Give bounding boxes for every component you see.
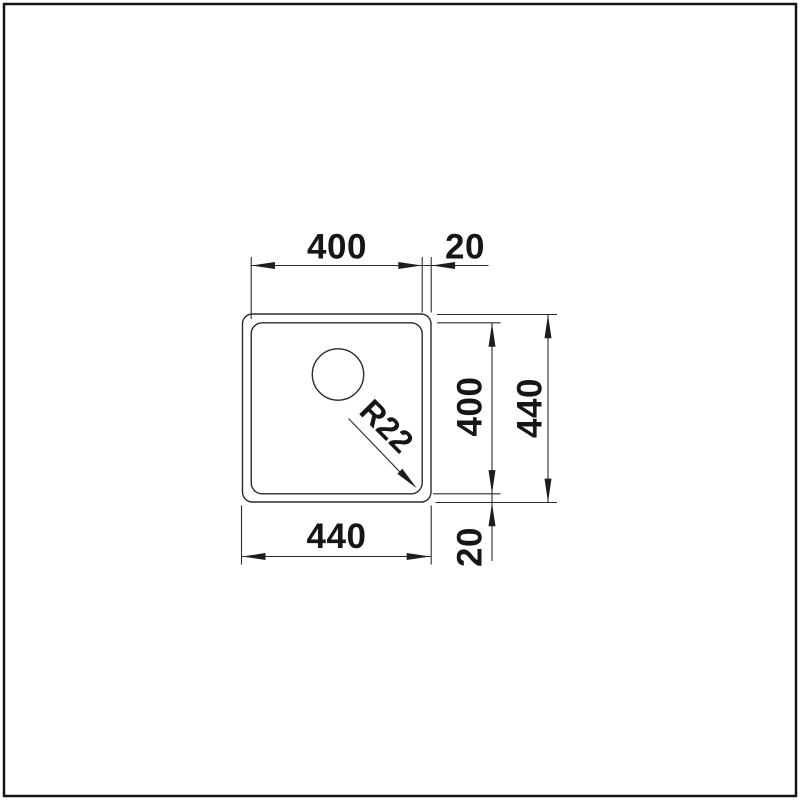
dimension-label-corner-radius: R22 xyxy=(353,392,421,460)
dimension-label-inner-width: 400 xyxy=(307,228,367,267)
dimension-label-inner-height: 400 xyxy=(451,377,490,437)
drawing-page: 400 20 440 400 440 20 R22 xyxy=(0,0,800,800)
arrowhead-right-20 xyxy=(489,503,496,527)
page-border-frame xyxy=(4,4,796,796)
dimension-label-outer-height: 440 xyxy=(511,378,550,438)
dimension-label-outer-width: 440 xyxy=(307,517,367,556)
arrowhead-right-440-bottom xyxy=(545,479,552,503)
arrowhead-radius-leader xyxy=(397,469,417,489)
dimension-label-bottom-edge-offset: 20 xyxy=(451,527,490,567)
arrowhead-bottom-440-left xyxy=(242,553,266,560)
drain-hole-circle xyxy=(312,349,363,400)
arrowhead-right-400-top xyxy=(489,323,496,347)
dimension-label-right-edge-offset: 20 xyxy=(445,228,485,267)
arrowhead-right-400-bottom xyxy=(489,470,496,494)
drawing-canvas: 400 20 440 400 440 20 R22 xyxy=(0,0,800,800)
arrowhead-right-440-top xyxy=(545,315,552,339)
arrowhead-bottom-440-right xyxy=(407,553,431,560)
arrowhead-top-400-left xyxy=(252,262,276,269)
arrowhead-top-400-right xyxy=(398,262,422,269)
